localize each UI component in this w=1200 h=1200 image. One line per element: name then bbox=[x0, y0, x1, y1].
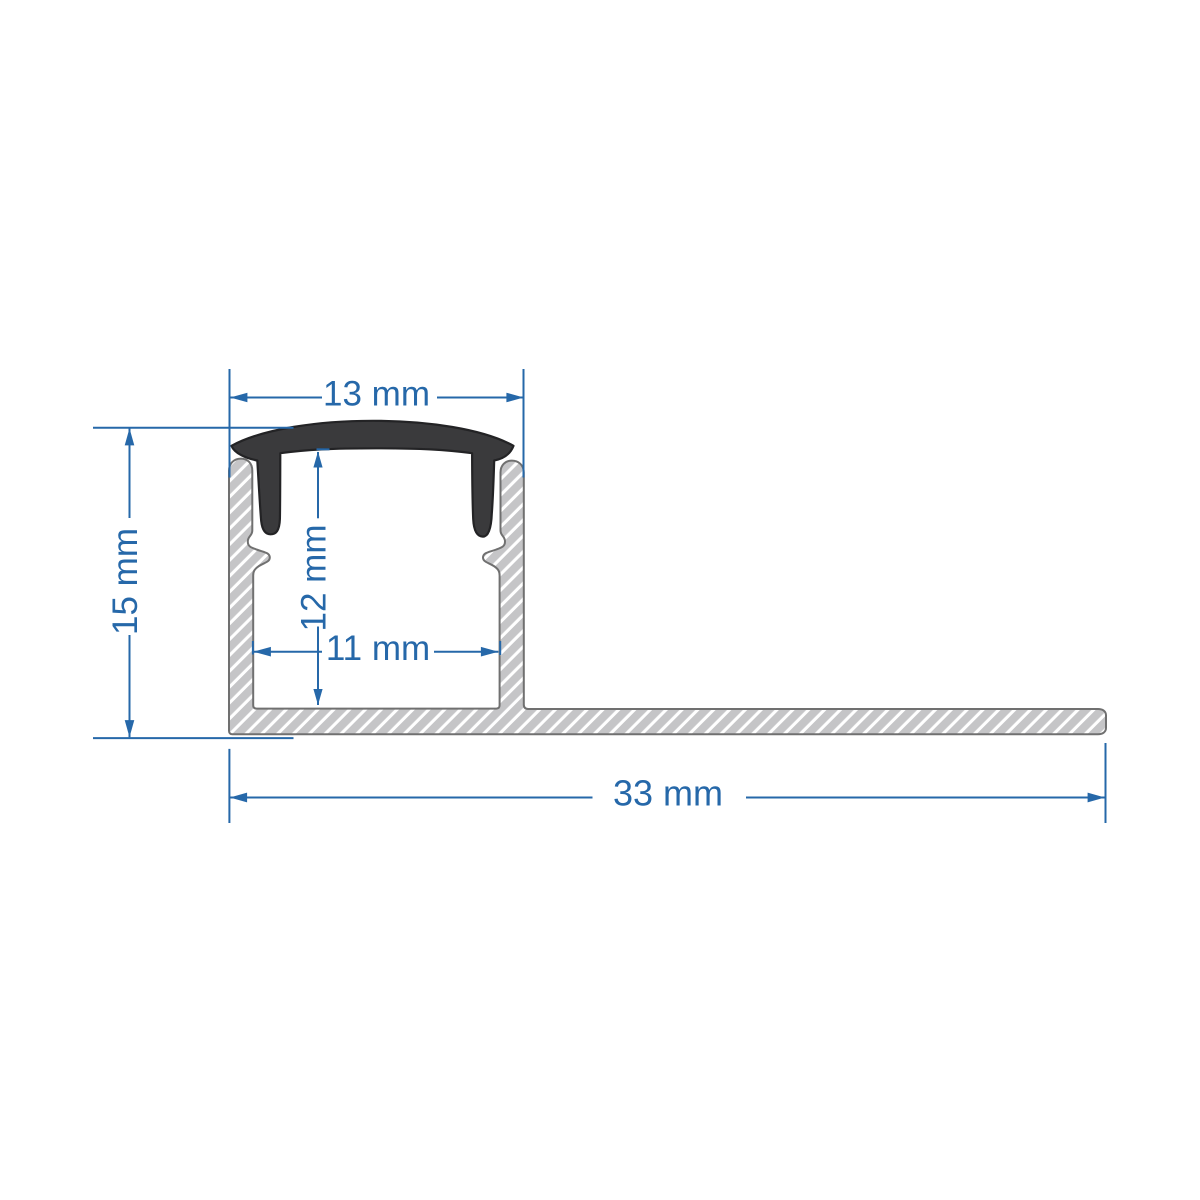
svg-text:15 mm: 15 mm bbox=[106, 528, 145, 635]
svg-text:13 mm: 13 mm bbox=[323, 374, 430, 413]
svg-text:33 mm: 33 mm bbox=[613, 773, 723, 814]
svg-text:11 mm: 11 mm bbox=[326, 629, 430, 668]
svg-text:12 mm: 12 mm bbox=[294, 525, 333, 632]
